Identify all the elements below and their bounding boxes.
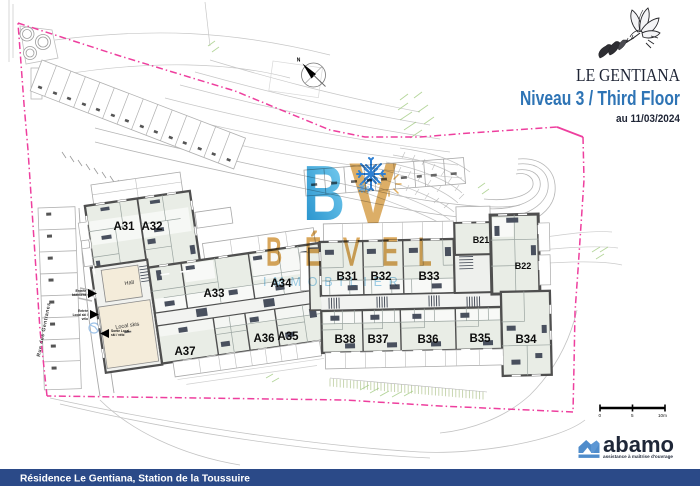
svg-text:B38: B38 (334, 334, 356, 346)
svg-text:B: B (303, 149, 345, 237)
svg-text:10m: 10m (658, 413, 667, 418)
svg-text:au 11/03/2024: au 11/03/2024 (616, 113, 681, 125)
svg-text:bâtiment: bâtiment (72, 293, 87, 297)
svg-text:A32: A32 (141, 221, 162, 233)
svg-text:V: V (349, 146, 397, 242)
svg-text:0: 0 (599, 413, 602, 418)
svg-text:A35: A35 (277, 331, 299, 343)
svg-text:B34: B34 (515, 334, 537, 346)
svg-text:vélo: vélo (82, 317, 88, 321)
svg-text:B36: B36 (417, 334, 438, 346)
svg-text:assistance à maîtrise d'ouvrag: assistance à maîtrise d'ouvrage (603, 454, 674, 459)
svg-text:A33: A33 (203, 288, 224, 300)
svg-text:B22: B22 (515, 261, 532, 271)
svg-text:5: 5 (631, 413, 634, 418)
svg-text:Résidence Le Gentiana, Station: Résidence Le Gentiana, Station de la Tou… (20, 474, 250, 485)
svg-text:ski / vélo: ski / vélo (111, 333, 125, 337)
svg-text:B37: B37 (367, 334, 388, 346)
svg-text:IMMOBILIER: IMMOBILIER (263, 275, 405, 289)
svg-text:B21: B21 (473, 235, 490, 245)
svg-text:B35: B35 (469, 333, 491, 345)
svg-text:N: N (297, 58, 301, 64)
svg-text:A31: A31 (113, 221, 135, 233)
svg-text:Niveau 3 / Third Floor: Niveau 3 / Third Floor (520, 88, 680, 110)
svg-text:LE GENTIANA: LE GENTIANA (576, 65, 680, 85)
svg-text:A36: A36 (253, 333, 274, 345)
svg-text:A37: A37 (174, 346, 195, 358)
